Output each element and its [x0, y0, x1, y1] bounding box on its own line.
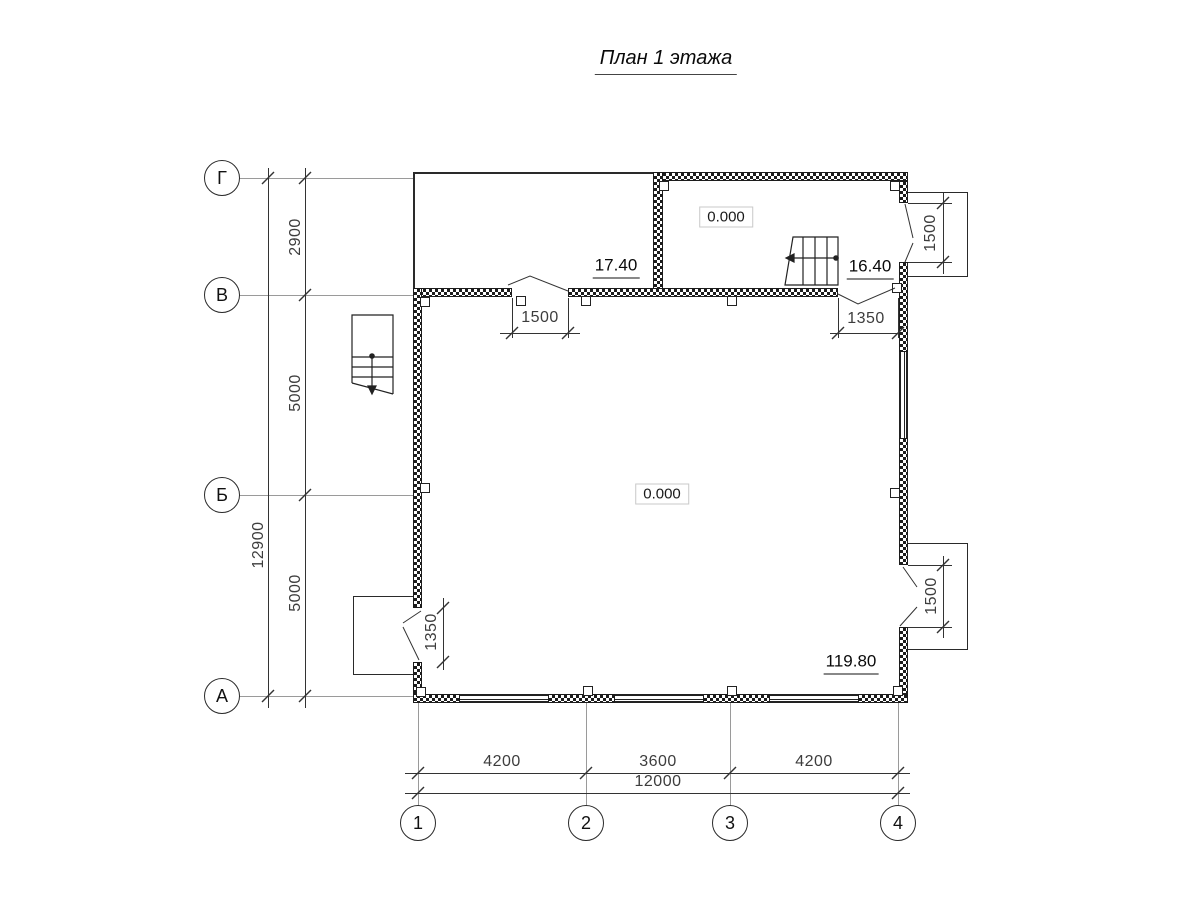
- wall-bottom-segment: [548, 694, 615, 703]
- wall-top: [653, 172, 908, 181]
- jamb-marker: [727, 296, 737, 306]
- axis-bubble-row-b: Б: [204, 477, 240, 513]
- level-mark-upper-room: 0.000: [699, 207, 753, 228]
- axis-bubble-col-4: 4: [880, 805, 916, 841]
- axis-bubble-col-2: 2: [568, 805, 604, 841]
- page-title: План 1 этажа: [595, 47, 737, 75]
- jamb-marker: [890, 488, 900, 498]
- jamb-marker: [892, 283, 902, 293]
- level-mark-main-room: 0.000: [635, 484, 689, 505]
- dim-12000: 12000: [635, 773, 682, 791]
- jamb-marker: [893, 686, 903, 696]
- floor-plan-drawing: План 1 этажа: [0, 0, 1200, 900]
- elevation-mark-16-40: 16.40: [847, 257, 894, 280]
- axis-bubble-row-v: В: [204, 277, 240, 313]
- jamb-marker: [516, 296, 526, 306]
- wall-left-segment: [413, 288, 422, 608]
- axis-label: 2: [581, 813, 591, 834]
- jamb-marker: [420, 297, 430, 307]
- axis-line-col-3: [730, 703, 731, 806]
- ext-line: [568, 298, 569, 338]
- jamb-marker: [659, 181, 669, 191]
- window-right: [899, 352, 908, 438]
- dim-right-bottom-1500: 1500: [923, 577, 941, 615]
- stair-arrow-head: [368, 386, 376, 394]
- wall-right-segment: [899, 438, 908, 565]
- jamb-marker: [890, 181, 900, 191]
- axis-line-row-v: [239, 295, 413, 296]
- dim-2900: 2900: [287, 218, 305, 256]
- axis-label: 3: [725, 813, 735, 834]
- linework-overlay: [0, 0, 1200, 900]
- dim-3600: 3600: [639, 753, 677, 771]
- axis-line-col-4: [898, 703, 899, 806]
- jamb-marker: [420, 483, 430, 493]
- wall-right-segment: [899, 181, 908, 203]
- axis-line-col-2: [586, 703, 587, 806]
- axis-line-row-a: [239, 696, 413, 697]
- axis-bubble-row-a: А: [204, 678, 240, 714]
- window-bottom: [615, 694, 703, 703]
- dim-line-left-bottom-1350: [443, 598, 444, 670]
- axis-bubble-row-g: Г: [204, 160, 240, 196]
- axis-line-row-g: [239, 178, 413, 179]
- dim-left-bottom-1350: 1350: [423, 613, 441, 651]
- porch-bottom-left: [353, 596, 413, 675]
- axis-line-col-1: [418, 703, 419, 806]
- wall-right-segment: [899, 262, 908, 352]
- window-bottom: [770, 694, 858, 703]
- jamb-marker: [581, 296, 591, 306]
- dim-line-left-segments: [305, 168, 306, 708]
- axis-label: В: [216, 285, 228, 306]
- stairs-upper-room: [785, 237, 838, 285]
- jamb-marker: [727, 686, 737, 696]
- stairs-left: [352, 315, 393, 394]
- dim-5000-lower: 5000: [287, 574, 305, 612]
- dim-door-1350: 1350: [847, 310, 885, 328]
- dim-right-top-1500: 1500: [922, 214, 940, 252]
- axis-bubble-col-1: 1: [400, 805, 436, 841]
- dim-line-bottom-total: [405, 793, 910, 794]
- ext-line: [838, 298, 839, 338]
- dim-line-door-1500: [500, 333, 580, 334]
- axis-label: Г: [217, 168, 227, 189]
- axis-label: 4: [893, 813, 903, 834]
- elevation-mark-17-40: 17.40: [593, 256, 640, 279]
- axis-label: А: [216, 686, 228, 707]
- axis-label: 1: [413, 813, 423, 834]
- dim-5000-upper: 5000: [287, 374, 305, 412]
- axis-bubble-col-3: 3: [712, 805, 748, 841]
- dim-line-left-total: [268, 168, 269, 708]
- axis-line-row-b: [239, 495, 413, 496]
- dim-door-1500: 1500: [521, 309, 559, 327]
- stair-arrow-head: [786, 254, 794, 262]
- wall-axis-v-segment: [413, 288, 512, 297]
- dim-12900: 12900: [250, 522, 268, 569]
- stair-arrow-start-dot: [834, 256, 838, 260]
- dim-4200-left: 4200: [483, 753, 521, 771]
- jamb-marker: [416, 687, 426, 697]
- wall-axis-v-segment: [568, 288, 838, 297]
- dim-4200-right: 4200: [795, 753, 833, 771]
- elevation-mark-119-80: 119.80: [824, 652, 879, 675]
- jamb-marker: [583, 686, 593, 696]
- stair-arrow-start-dot: [370, 354, 374, 358]
- axis-label: Б: [216, 485, 228, 506]
- window-bottom: [460, 694, 548, 703]
- dim-line-door-1350: [830, 333, 906, 334]
- wall-right-segment: [899, 627, 908, 694]
- ext-line: [512, 298, 513, 338]
